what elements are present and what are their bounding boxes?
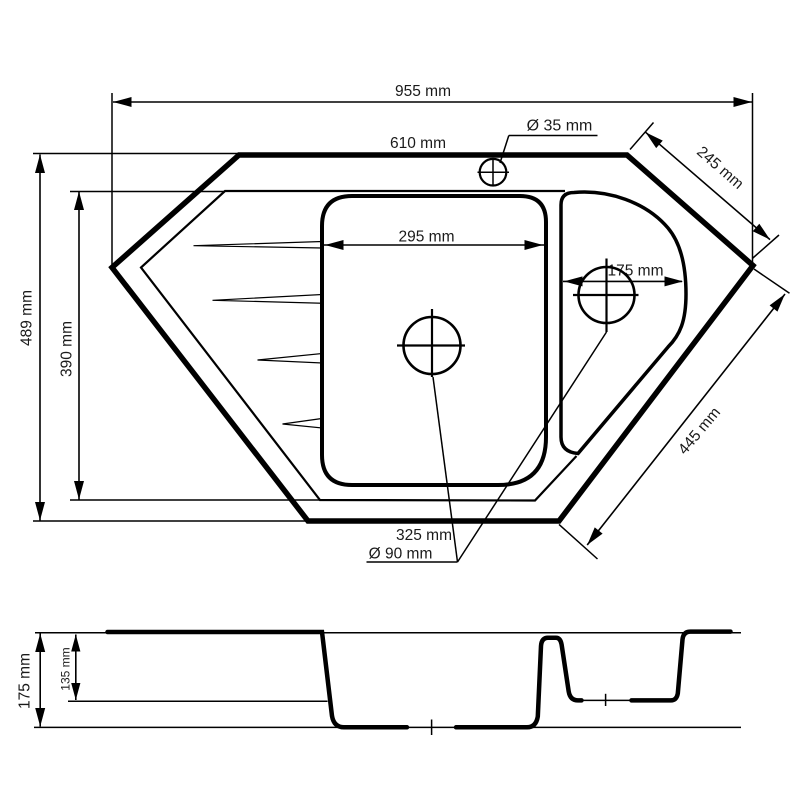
svg-text:610 mm: 610 mm	[390, 135, 446, 152]
svg-text:Ø 90 mm: Ø 90 mm	[369, 546, 433, 563]
svg-text:955 mm: 955 mm	[395, 83, 451, 100]
svg-text:175 mm: 175 mm	[608, 263, 664, 280]
svg-text:489 mm: 489 mm	[19, 290, 36, 346]
svg-text:325 mm: 325 mm	[396, 527, 452, 544]
svg-text:175 mm: 175 mm	[17, 653, 34, 709]
svg-text:135 mm: 135 mm	[59, 647, 73, 690]
svg-text:Ø 35 mm: Ø 35 mm	[527, 118, 593, 135]
svg-text:295 mm: 295 mm	[399, 229, 455, 246]
svg-text:390 mm: 390 mm	[59, 321, 76, 377]
